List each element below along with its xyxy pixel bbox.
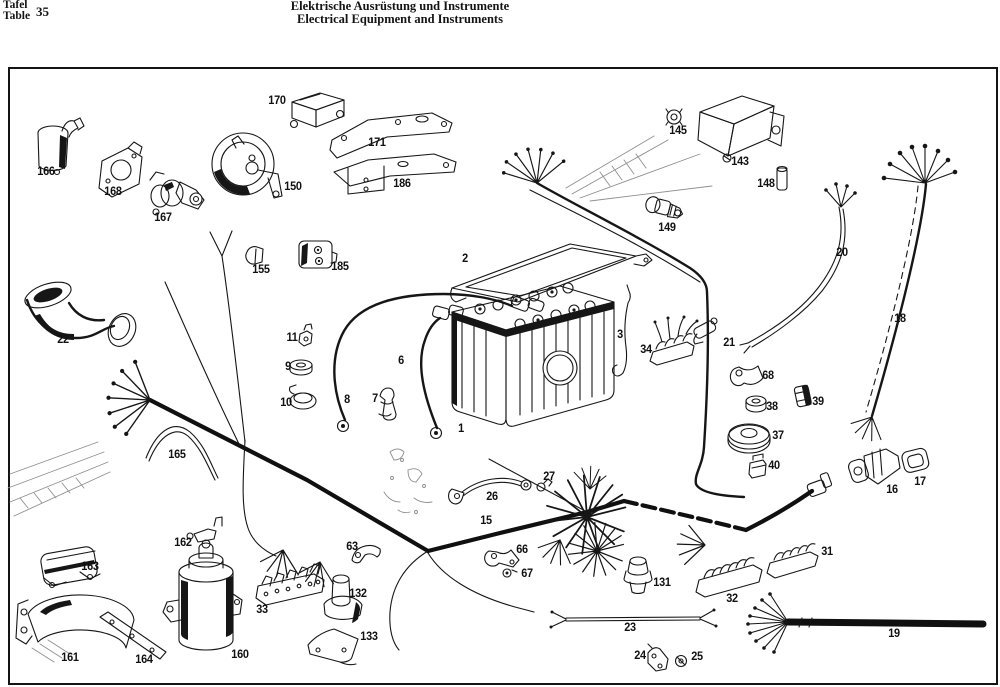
part-185-illustration	[299, 241, 337, 268]
part-68-clamp-illustration	[730, 366, 763, 386]
part-164-strap-illustration	[100, 612, 166, 659]
part-168-illustration	[99, 142, 142, 197]
part-66-clamp-illustration	[485, 550, 519, 567]
part-133-plate-illustration	[308, 629, 358, 665]
part-160-ignition-coil-illustration	[163, 540, 242, 650]
part-132-boot-illustration	[324, 575, 362, 623]
part-18-harness-illustration	[848, 144, 958, 444]
part-10-grommet-illustration	[290, 385, 317, 409]
part-38-nut-illustration	[746, 396, 766, 412]
part-161-clamp-illustration	[16, 595, 134, 648]
part-163-relay-illustration	[40, 546, 100, 588]
part-167-illustration	[150, 172, 204, 215]
part-162-illustration	[187, 517, 222, 542]
part-20-wire-illustration	[740, 182, 857, 353]
part-7-terminal-boot-illustration	[379, 388, 396, 420]
main-wiring-harness	[150, 183, 812, 650]
ghost-outline-bottom-left	[32, 640, 70, 662]
part-17-gasket-illustration	[901, 447, 930, 473]
part-67-bolt-illustration	[503, 569, 517, 577]
part-19-harness-illustration	[746, 592, 983, 654]
part-166-illustration	[38, 118, 84, 175]
part-1-battery-illustration	[452, 283, 614, 426]
part-16-connector-illustration	[805, 449, 900, 497]
part-27-screw-illustration	[537, 479, 552, 491]
part-165-illustration	[146, 427, 218, 480]
part-171-illustration	[330, 113, 452, 158]
part-6-battery-cable-illustration	[421, 301, 464, 439]
part-40-clip-illustration	[749, 454, 766, 478]
part-39-grommet-illustration	[794, 385, 812, 407]
part-170-illustration	[291, 93, 345, 128]
part-145-nut-illustration	[666, 109, 682, 125]
part-34-fuse-block-illustration	[650, 316, 699, 366]
part-31-fuse-strip-illustration	[767, 544, 818, 578]
part-186-illustration	[334, 154, 456, 194]
part-150-horn-illustration	[212, 133, 282, 198]
part-37-washer-illustration	[728, 424, 770, 453]
part-148-illustration	[777, 167, 787, 191]
part-3-hold-down-rod-illustration	[613, 285, 631, 376]
part-9-washer-illustration	[290, 360, 312, 375]
part-23-wire-illustration	[550, 609, 718, 629]
parts-catalog-page: Tafel Table 35 Elektrische Ausrüstung un…	[0, 0, 1000, 687]
part-143-voltage-regulator-illustration	[698, 96, 784, 162]
ghost-sketch-center	[384, 449, 432, 514]
part-25-grommet-illustration	[676, 656, 687, 667]
part-155-illustration	[246, 247, 263, 264]
part-131-switch-illustration	[624, 557, 652, 593]
part-32-fuse-strip-illustration	[696, 558, 762, 597]
part-149-sender-bolt-illustration	[644, 195, 685, 220]
ghost-outline-top-right	[566, 136, 712, 201]
part-24-bracket-illustration	[648, 644, 668, 671]
part-8-battery-cable-illustration	[334, 292, 544, 431]
part-26-cable-illustration	[449, 478, 531, 504]
ghost-outline-left	[8, 442, 110, 516]
part-22-horn-trumpet-illustration	[22, 277, 141, 351]
part-63-clamp-illustration	[352, 545, 380, 562]
exploded-parts-illustration	[0, 0, 1000, 687]
part-11-clip-illustration	[299, 324, 312, 346]
